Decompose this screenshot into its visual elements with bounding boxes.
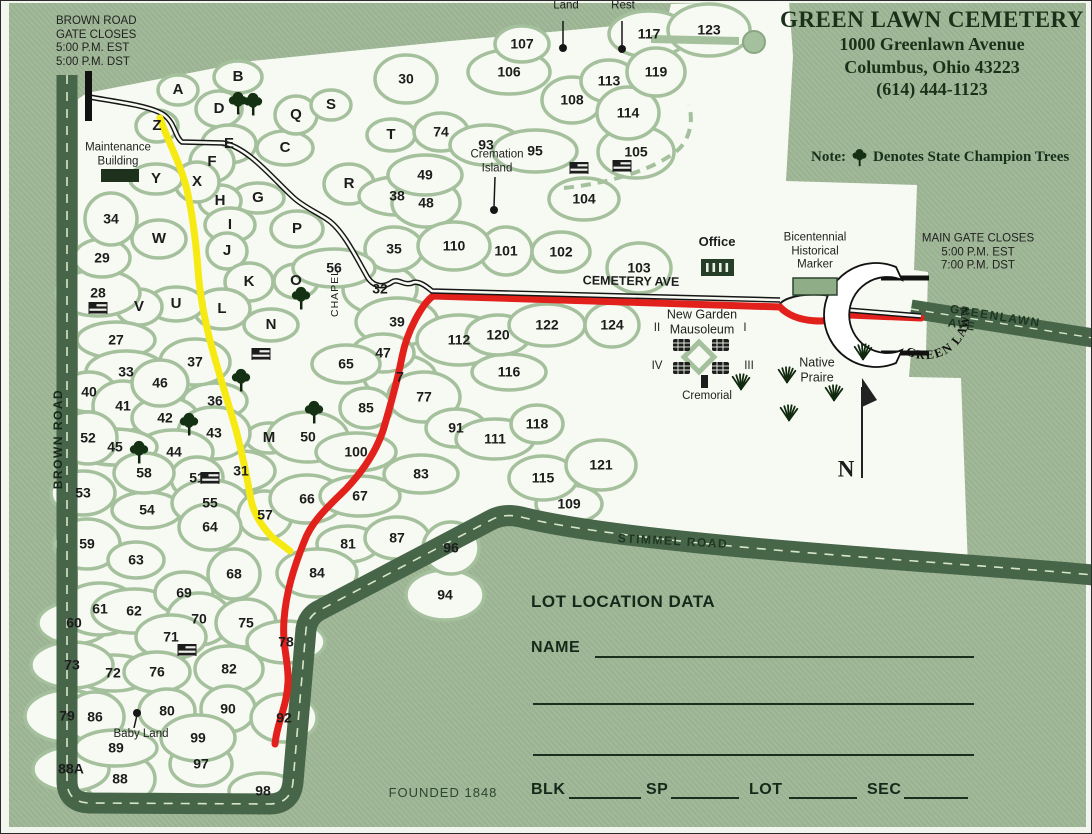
lot-label-I: I <box>228 217 232 234</box>
lot-label-27: 27 <box>108 332 124 347</box>
lot-label-118: 118 <box>526 416 549 431</box>
lot-label-121: 121 <box>589 457 612 472</box>
lot-label-95: 95 <box>527 143 543 158</box>
lot-label-56: 56 <box>326 260 342 275</box>
lot-label-59: 59 <box>79 536 95 551</box>
lot-label-45: 45 <box>107 439 123 454</box>
lot-label-81: 81 <box>340 536 356 551</box>
chapel-label: CHAPEL <box>329 269 341 317</box>
main-gate-note: MAIN GATE CLOSES 5:00 P.M. EST 7:00 P.M.… <box>922 233 1034 274</box>
lot-label-46: 46 <box>152 375 168 390</box>
lot-label-77: 77 <box>416 389 432 404</box>
lot-label-83: 83 <box>413 466 429 481</box>
lot-label-107: 107 <box>510 36 533 51</box>
lot-label-40: 40 <box>81 384 97 399</box>
cemetery-city: Columbus, Ohio 43223 <box>773 56 1091 79</box>
lot-label-43: 43 <box>206 425 222 440</box>
cemetery-phone: (614) 444-1123 <box>773 78 1091 101</box>
lot-label: LOT <box>749 781 783 799</box>
name-line[interactable] <box>595 656 974 658</box>
lot-label-85: 85 <box>358 400 374 415</box>
lot-label-116: 116 <box>498 364 521 379</box>
lot-label-63: 63 <box>128 552 144 567</box>
brown-road-label: BROWN ROAD <box>51 389 65 489</box>
baby-rest-label: Baby Rest <box>610 0 636 13</box>
lot-label-94: 94 <box>437 587 453 602</box>
lot-label-120: 120 <box>486 327 509 342</box>
lot-label-42: 42 <box>157 410 173 425</box>
lot-label-62: 62 <box>126 603 142 618</box>
lot-label-Q: Q <box>290 107 302 124</box>
mausoleum-quad-4: IV <box>652 360 663 374</box>
lot-label-90: 90 <box>220 701 236 716</box>
lot-label-U: U <box>171 296 182 313</box>
lot-label-69: 69 <box>176 585 192 600</box>
lot-label-65: 65 <box>338 356 354 371</box>
lot-label-80: 80 <box>159 703 175 718</box>
lot-label-93: 93 <box>478 137 494 152</box>
lot-label-51: 51 <box>189 470 205 485</box>
lot-label-98: 98 <box>255 783 271 798</box>
office-label: Office <box>699 235 736 249</box>
lot-label-W: W <box>152 231 166 248</box>
lot-label-76: 76 <box>149 664 165 679</box>
lot-label-X: X <box>192 174 202 191</box>
lot-label-36: 36 <box>207 393 223 408</box>
lot-label-38: 38 <box>389 188 405 203</box>
lot-label-P: P <box>292 221 302 238</box>
bicentennial-label: Bicentennial Historical Marker <box>784 232 847 273</box>
lot-label-A: A <box>173 82 184 99</box>
lot-label-123: 123 <box>697 22 720 37</box>
lot-label-35: 35 <box>386 241 402 256</box>
native-prairie-label: Native Praire <box>799 355 834 385</box>
lot-label-68: 68 <box>226 566 242 581</box>
lot-label-28: 28 <box>90 285 106 300</box>
lot-label-48: 48 <box>418 195 434 210</box>
map-labels: BROWN ROAD GATE CLOSES 5:00 P.M. EST 5:0… <box>1 1 1091 833</box>
lot-label-Z: Z <box>152 118 161 135</box>
lot-label-114: 114 <box>617 105 640 120</box>
brown-gate-note: BROWN ROAD GATE CLOSES 5:00 P.M. EST 5:0… <box>56 15 137 69</box>
lot-label-34: 34 <box>103 211 119 226</box>
lot-label-J: J <box>223 243 231 260</box>
blank-line-2[interactable] <box>533 703 974 705</box>
lot-label-61: 61 <box>92 601 108 616</box>
lot-label-103: 103 <box>627 260 650 275</box>
cemetery-map-page: GREEN LAWN <box>0 0 1092 834</box>
lot-label-57: 57 <box>257 507 273 522</box>
lot-label-E: E <box>224 136 234 153</box>
lot-label-V: V <box>134 299 144 316</box>
lot-label-41: 41 <box>115 398 131 413</box>
lot-label-110: 110 <box>443 238 466 253</box>
lot-label-74: 74 <box>433 124 449 139</box>
lot-label-52: 52 <box>80 430 96 445</box>
lot-label-F: F <box>207 154 216 171</box>
lot-label-30: 30 <box>398 71 414 86</box>
maintenance-building-label: Maintenance Building <box>85 141 151 168</box>
mausoleum-quad-1: I <box>743 322 746 336</box>
lot-label-122: 122 <box>535 317 558 332</box>
lot-label-105: 105 <box>624 144 647 159</box>
lot-label-70: 70 <box>191 611 207 626</box>
lot-label-67: 67 <box>352 488 368 503</box>
lot-label-117: 117 <box>638 26 661 41</box>
blk-label: BLK <box>531 781 565 799</box>
lot-label-100: 100 <box>344 444 367 459</box>
lot-label-K: K <box>244 274 255 291</box>
lot-label-108: 108 <box>560 92 583 107</box>
founded-label: FOUNDED 1848 <box>389 786 498 800</box>
lot-label-124: 124 <box>600 317 623 332</box>
lot-label-84: 84 <box>309 565 325 580</box>
note-text: Denotes State Champion Trees <box>873 149 1069 166</box>
lot-label-60: 60 <box>66 615 82 630</box>
cemetery-address: 1000 Greenlawn Avenue <box>773 33 1091 56</box>
lot-label-33: 33 <box>118 364 134 379</box>
lot-label-O: O <box>290 273 302 290</box>
lot-label-47: 47 <box>375 345 391 360</box>
lot-label-101: 101 <box>494 243 517 258</box>
lot-label-64: 64 <box>202 519 218 534</box>
lot-label-78: 78 <box>278 634 294 649</box>
lot-label-R: R <box>344 176 355 193</box>
lot-label-89: 89 <box>108 740 124 755</box>
lot-label-29: 29 <box>94 250 110 265</box>
mausoleum-label: New Garden Mausoleum <box>667 307 737 337</box>
header: GREEN LAWN CEMETERY 1000 Greenlawn Avenu… <box>773 7 1091 101</box>
blk-line[interactable] <box>569 797 641 799</box>
blank-line-3[interactable] <box>533 754 974 756</box>
lot-label-53: 53 <box>75 485 91 500</box>
lot-label-82: 82 <box>221 661 237 676</box>
sec-line[interactable] <box>904 797 968 799</box>
lot-label-104: 104 <box>572 191 595 206</box>
lot-label-96: 96 <box>443 540 459 555</box>
lullabye-land-label: Lullabye Land <box>545 0 588 13</box>
champion-tree-icon <box>851 148 868 167</box>
sec-label: SEC <box>867 781 901 799</box>
lot-label-111: 111 <box>484 431 506 446</box>
champion-tree-note: Note: Denotes State Champion Trees <box>811 148 1069 167</box>
lot-label-106: 106 <box>497 64 520 79</box>
lot-label-D: D <box>214 101 225 118</box>
lot-label-86: 86 <box>87 709 103 724</box>
lot-label-50: 50 <box>300 429 316 444</box>
cemetery-ave-label: CEMETERY AVE <box>583 274 680 289</box>
cemetery-title: GREEN LAWN CEMETERY <box>773 7 1091 33</box>
lot-label-T: T <box>386 127 395 144</box>
lot-label-97: 97 <box>193 756 209 771</box>
lot-label-7: 7 <box>396 369 404 384</box>
mausoleum-quad-3: III <box>744 360 754 374</box>
lot-label-109: 109 <box>557 496 580 511</box>
lot-label-88: 88 <box>112 771 128 786</box>
lot-label-119: 119 <box>645 64 668 79</box>
stimmel-road-label: STIMMEL ROAD <box>617 531 728 551</box>
lot-label-54: 54 <box>139 502 155 517</box>
lot-label-S: S <box>326 97 336 114</box>
sp-label: SP <box>646 781 668 799</box>
lot-label-55: 55 <box>202 495 218 510</box>
sp-line[interactable] <box>671 797 739 799</box>
lot-label-32: 32 <box>372 281 388 296</box>
lot-label-71: 71 <box>163 629 179 644</box>
lot-label-112: 112 <box>448 332 471 347</box>
lot-label-N: N <box>266 317 277 334</box>
lot-label-88A: 88A <box>58 761 84 776</box>
lot-label-B: B <box>233 69 244 86</box>
lot-label-102: 102 <box>549 244 572 259</box>
greenlawn-ave-label: GREENLAWN AVE <box>947 302 1045 345</box>
lot-label-31: 31 <box>233 463 249 478</box>
lot-label-72: 72 <box>105 665 121 680</box>
lot-label-49: 49 <box>417 167 433 182</box>
lot-label-115: 115 <box>532 470 555 485</box>
lot-label-C: C <box>280 140 291 157</box>
lot-label-99: 99 <box>190 730 206 745</box>
lot-label-66: 66 <box>299 491 315 506</box>
lot-label-L: L <box>217 301 226 318</box>
lot-label-92: 92 <box>276 710 292 725</box>
compass-n-label: N <box>838 456 855 481</box>
lot-label-58: 58 <box>136 465 152 480</box>
lot-label-75: 75 <box>238 615 254 630</box>
mausoleum-quad-2: II <box>654 322 660 336</box>
lot-label-37: 37 <box>187 354 203 369</box>
name-label: NAME <box>531 639 580 657</box>
lot-label-113: 113 <box>598 73 621 88</box>
lot-label-M: M <box>263 430 276 447</box>
lot-line[interactable] <box>789 797 857 799</box>
lot-label-91: 91 <box>448 420 464 435</box>
lot-label-73: 73 <box>64 657 80 672</box>
lot-label-H: H <box>215 193 226 210</box>
lot-label-G: G <box>252 190 264 207</box>
lot-label-39: 39 <box>389 314 405 329</box>
lot-label-Y: Y <box>151 171 161 188</box>
cremorial-label: Cremorial <box>682 390 732 404</box>
lot-label-79: 79 <box>59 708 75 723</box>
lot-label-87: 87 <box>389 530 405 545</box>
lot-label-44: 44 <box>166 444 182 459</box>
lot-location-title: LOT LOCATION DATA <box>531 592 715 612</box>
note-prefix: Note: <box>811 149 846 166</box>
